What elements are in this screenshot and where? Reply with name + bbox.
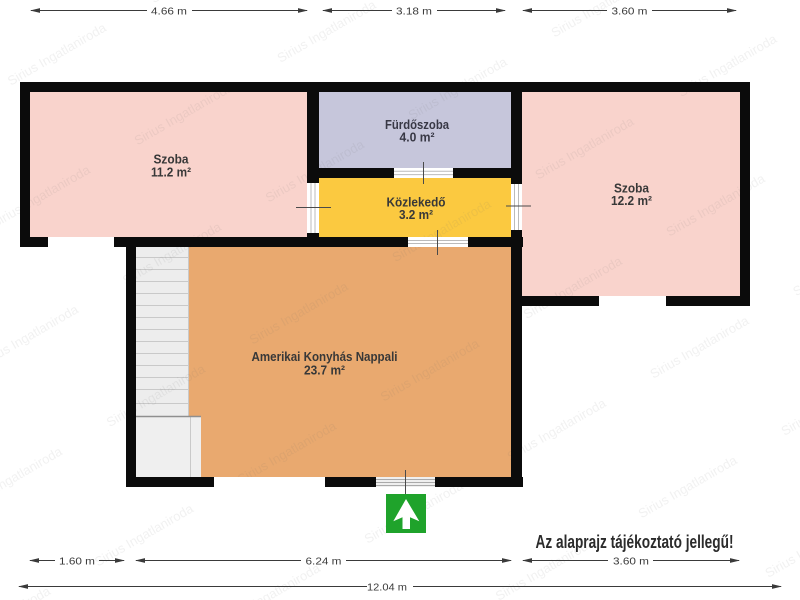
svg-text:23.7 m²: 23.7 m²	[304, 363, 346, 378]
svg-text:6.24 m: 6.24 m	[306, 556, 342, 568]
svg-text:4.66 m: 4.66 m	[151, 6, 187, 18]
svg-text:12.04 m: 12.04 m	[367, 582, 407, 594]
svg-text:12.2 m²: 12.2 m²	[611, 193, 653, 208]
svg-text:11.2 m²: 11.2 m²	[151, 165, 192, 180]
svg-text:1.60 m: 1.60 m	[59, 556, 95, 568]
svg-text:4.0 m²: 4.0 m²	[400, 130, 436, 145]
svg-text:3.60 m: 3.60 m	[613, 556, 649, 568]
svg-text:3.2 m²: 3.2 m²	[399, 207, 434, 222]
svg-text:3.18 m: 3.18 m	[396, 6, 432, 18]
svg-text:Az alaprajz tájékoztató jelleg: Az alaprajz tájékoztató jellegű!	[536, 532, 734, 552]
svg-text:3.60 m: 3.60 m	[612, 6, 648, 18]
